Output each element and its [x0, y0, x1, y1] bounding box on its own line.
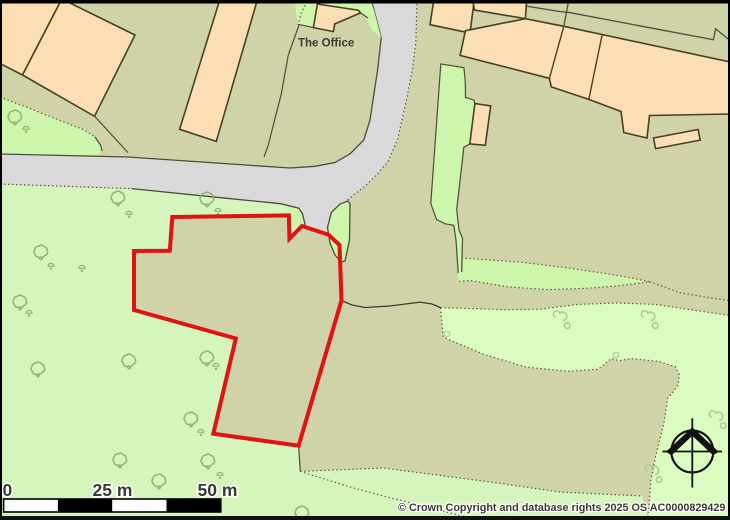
svg-text:0: 0	[3, 480, 13, 500]
svg-text:50 m: 50 m	[198, 480, 238, 500]
svg-text:25 m: 25 m	[93, 480, 133, 500]
svg-text:© Crown Copyright and database: © Crown Copyright and database rights 20…	[398, 502, 725, 514]
svg-text:The Office: The Office	[298, 38, 354, 50]
